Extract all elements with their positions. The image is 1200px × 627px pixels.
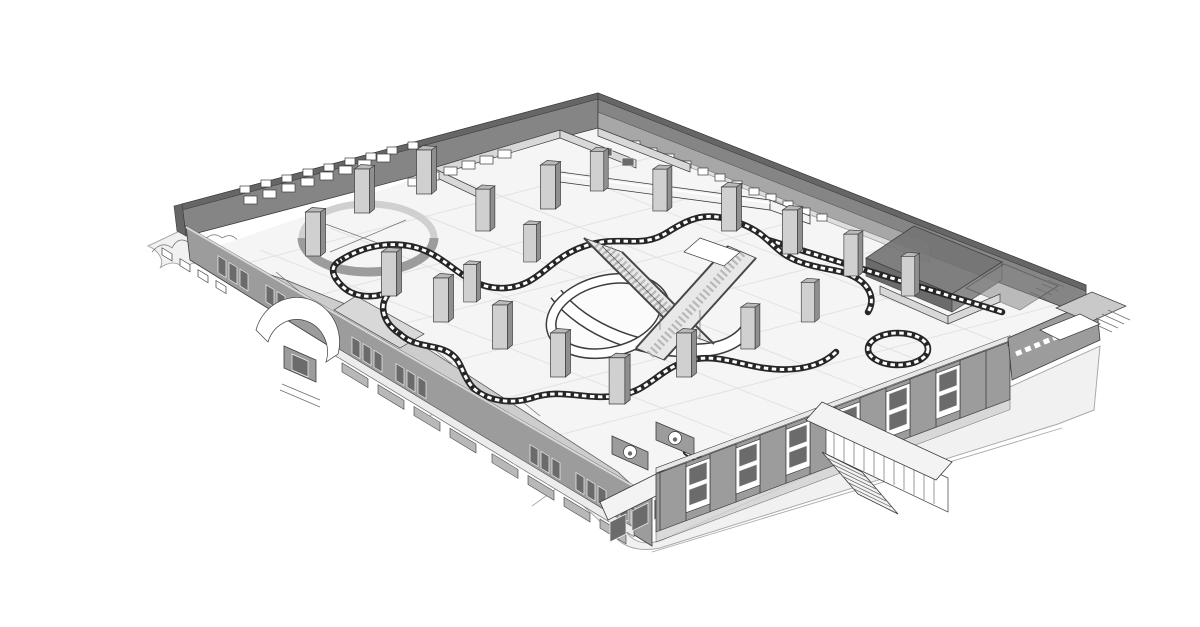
oval-window-motif: [628, 451, 632, 455]
column: [417, 146, 437, 195]
clerestory-window: [366, 153, 376, 160]
counter-unit: [444, 167, 457, 175]
oval-window-motif: [673, 437, 677, 441]
column: [476, 185, 495, 231]
counter-unit: [263, 190, 276, 198]
facade-pier: [660, 463, 686, 531]
kiosk-equipment: [622, 158, 634, 166]
column: [355, 165, 375, 214]
column: [590, 147, 608, 191]
column: [722, 183, 742, 232]
column: [493, 301, 513, 350]
facade-pier: [910, 369, 936, 437]
column: [901, 252, 919, 296]
counter-unit: [301, 178, 314, 186]
counter-unit: [320, 172, 333, 180]
column: [434, 274, 454, 323]
column: [464, 261, 481, 302]
clerestory-window: [240, 186, 250, 193]
column: [677, 329, 697, 378]
interior-window: [698, 168, 708, 175]
clerestory-window: [303, 169, 313, 176]
clerestory-window: [324, 164, 334, 171]
counter-unit: [480, 156, 493, 164]
column: [741, 303, 760, 349]
counter-unit: [282, 184, 295, 192]
column: [844, 230, 863, 276]
clerestory-window: [282, 175, 292, 182]
interior-window: [715, 174, 725, 181]
column: [653, 165, 672, 211]
clerestory-window: [261, 180, 271, 187]
column: [306, 208, 326, 257]
clerestory-window: [408, 142, 418, 149]
facade-pier: [760, 425, 786, 493]
counter-unit: [498, 150, 511, 158]
counter-unit: [339, 166, 352, 174]
clerestory-window: [387, 147, 397, 154]
column: [382, 248, 402, 297]
interior-window: [749, 188, 759, 195]
rendering-canvas: [0, 0, 1200, 627]
column: [801, 278, 819, 322]
building-model-rendering: [0, 0, 1200, 627]
counter-unit: [244, 196, 257, 204]
column: [541, 161, 561, 210]
clerestory-window: [345, 158, 355, 165]
column: [609, 353, 630, 404]
counter-unit: [462, 161, 475, 169]
column: [551, 329, 571, 378]
facade-pier: [960, 351, 986, 419]
facade-pier: [710, 444, 736, 512]
column: [524, 221, 541, 262]
interior-window: [817, 214, 827, 221]
counter-unit: [377, 154, 390, 162]
column: [783, 206, 803, 255]
